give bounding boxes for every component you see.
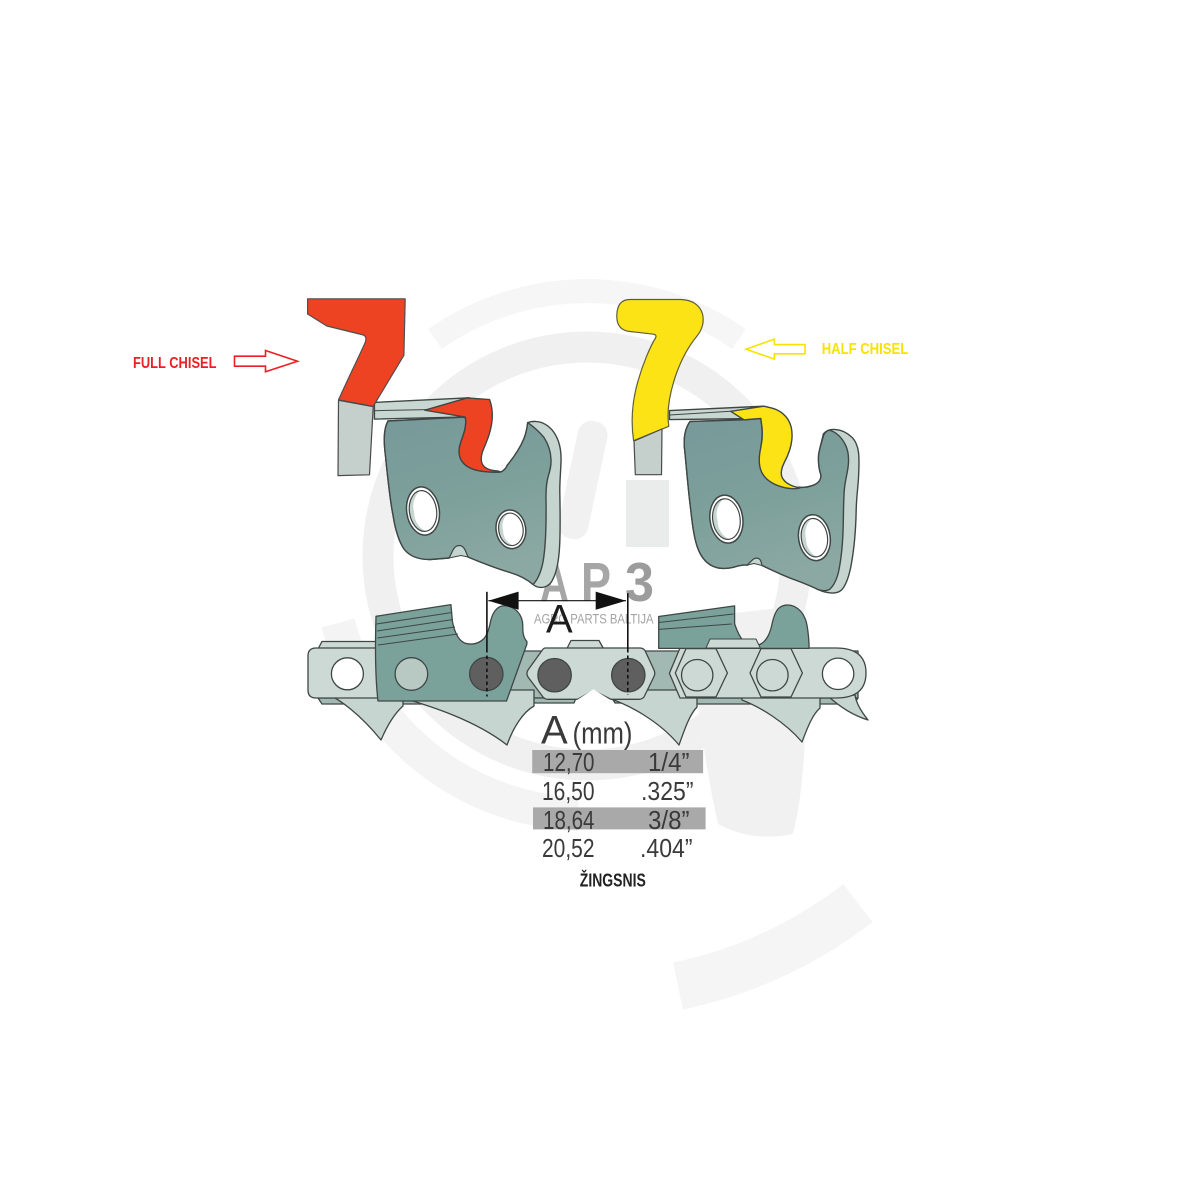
svg-text:16,50: 16,50 (542, 776, 595, 806)
svg-text:3: 3 (625, 551, 654, 613)
svg-text:A: A (546, 598, 573, 642)
svg-text:FULL CHISEL: FULL CHISEL (133, 355, 217, 372)
svg-text:HALF CHISEL: HALF CHISEL (822, 341, 909, 358)
svg-text:ŽINGSNIS: ŽINGSNIS (580, 870, 646, 891)
svg-text:.325”: .325” (641, 776, 694, 806)
svg-text:12,70: 12,70 (543, 747, 595, 777)
svg-text:3/8”: 3/8” (648, 805, 690, 835)
svg-text:1/4”: 1/4” (648, 747, 690, 777)
svg-text:.404”: .404” (640, 833, 693, 863)
svg-text:18,64: 18,64 (543, 805, 595, 835)
svg-text:(mm): (mm) (573, 716, 633, 751)
svg-text:20,52: 20,52 (542, 833, 595, 863)
